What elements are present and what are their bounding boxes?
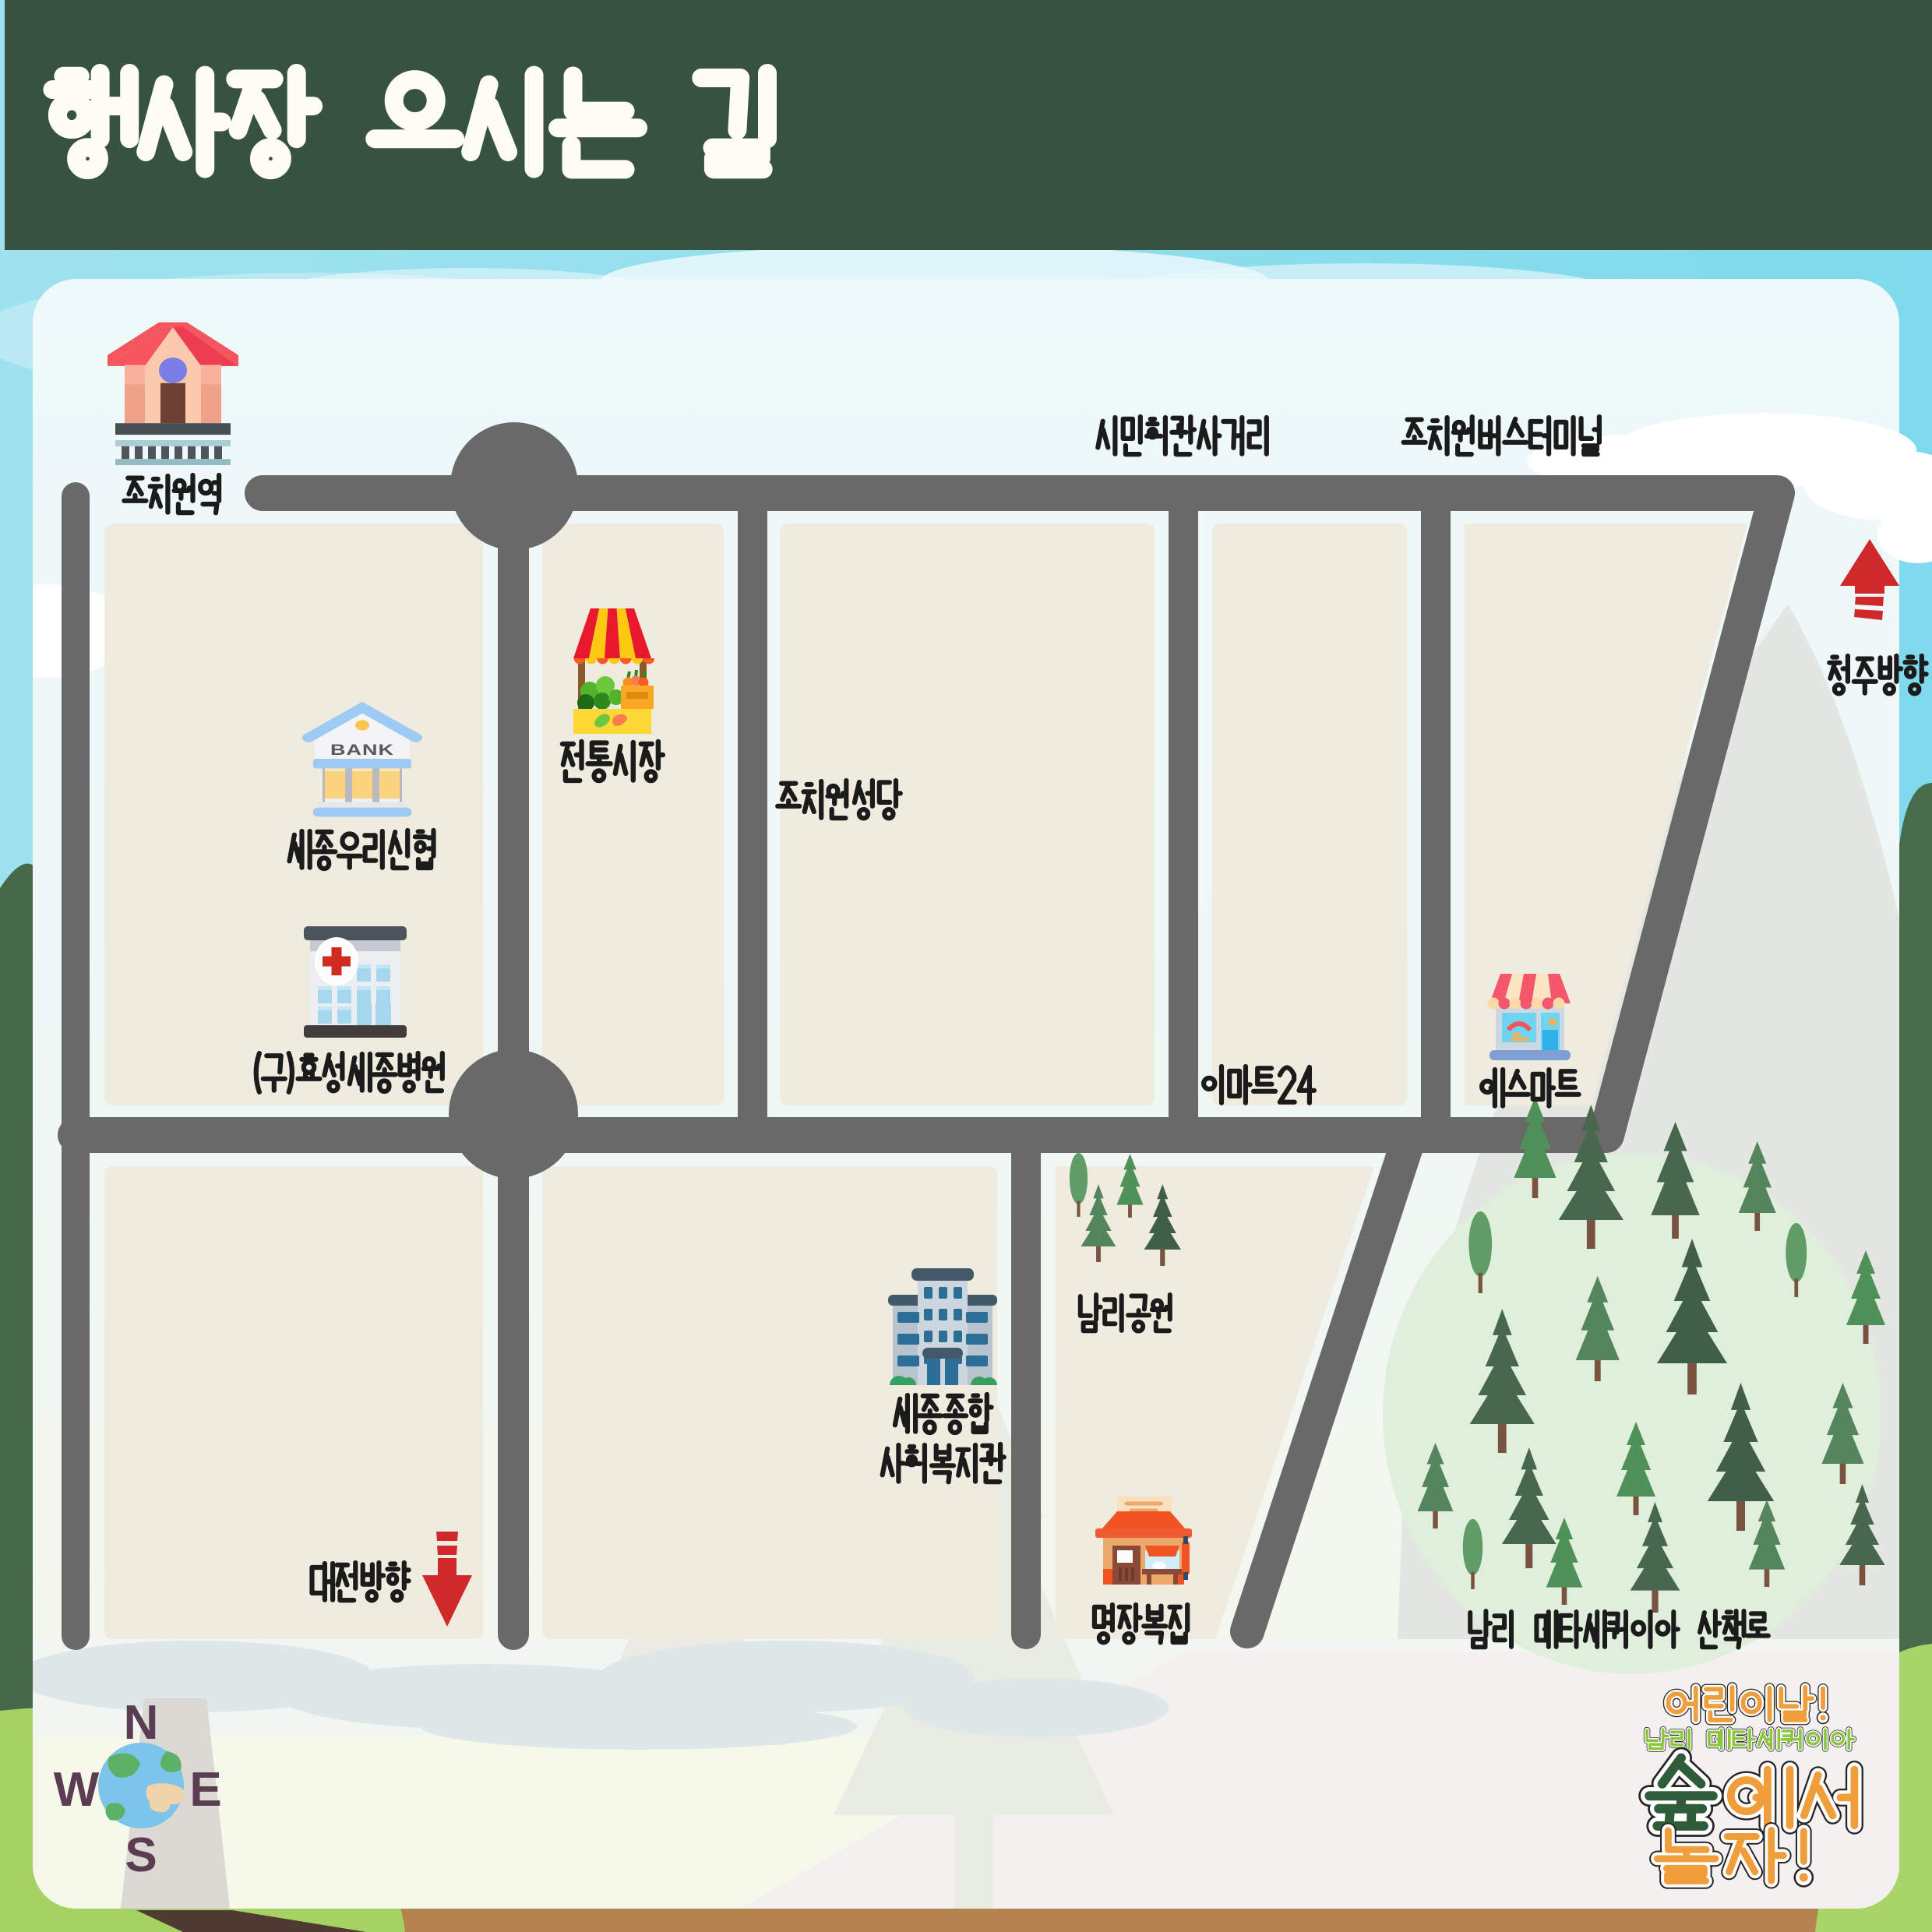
svg-text:E: E	[189, 1763, 221, 1817]
svg-text:N: N	[124, 1696, 159, 1750]
svg-text:BANK: BANK	[330, 742, 394, 759]
svg-text:W: W	[54, 1763, 100, 1817]
svg-text:S: S	[125, 1828, 157, 1882]
